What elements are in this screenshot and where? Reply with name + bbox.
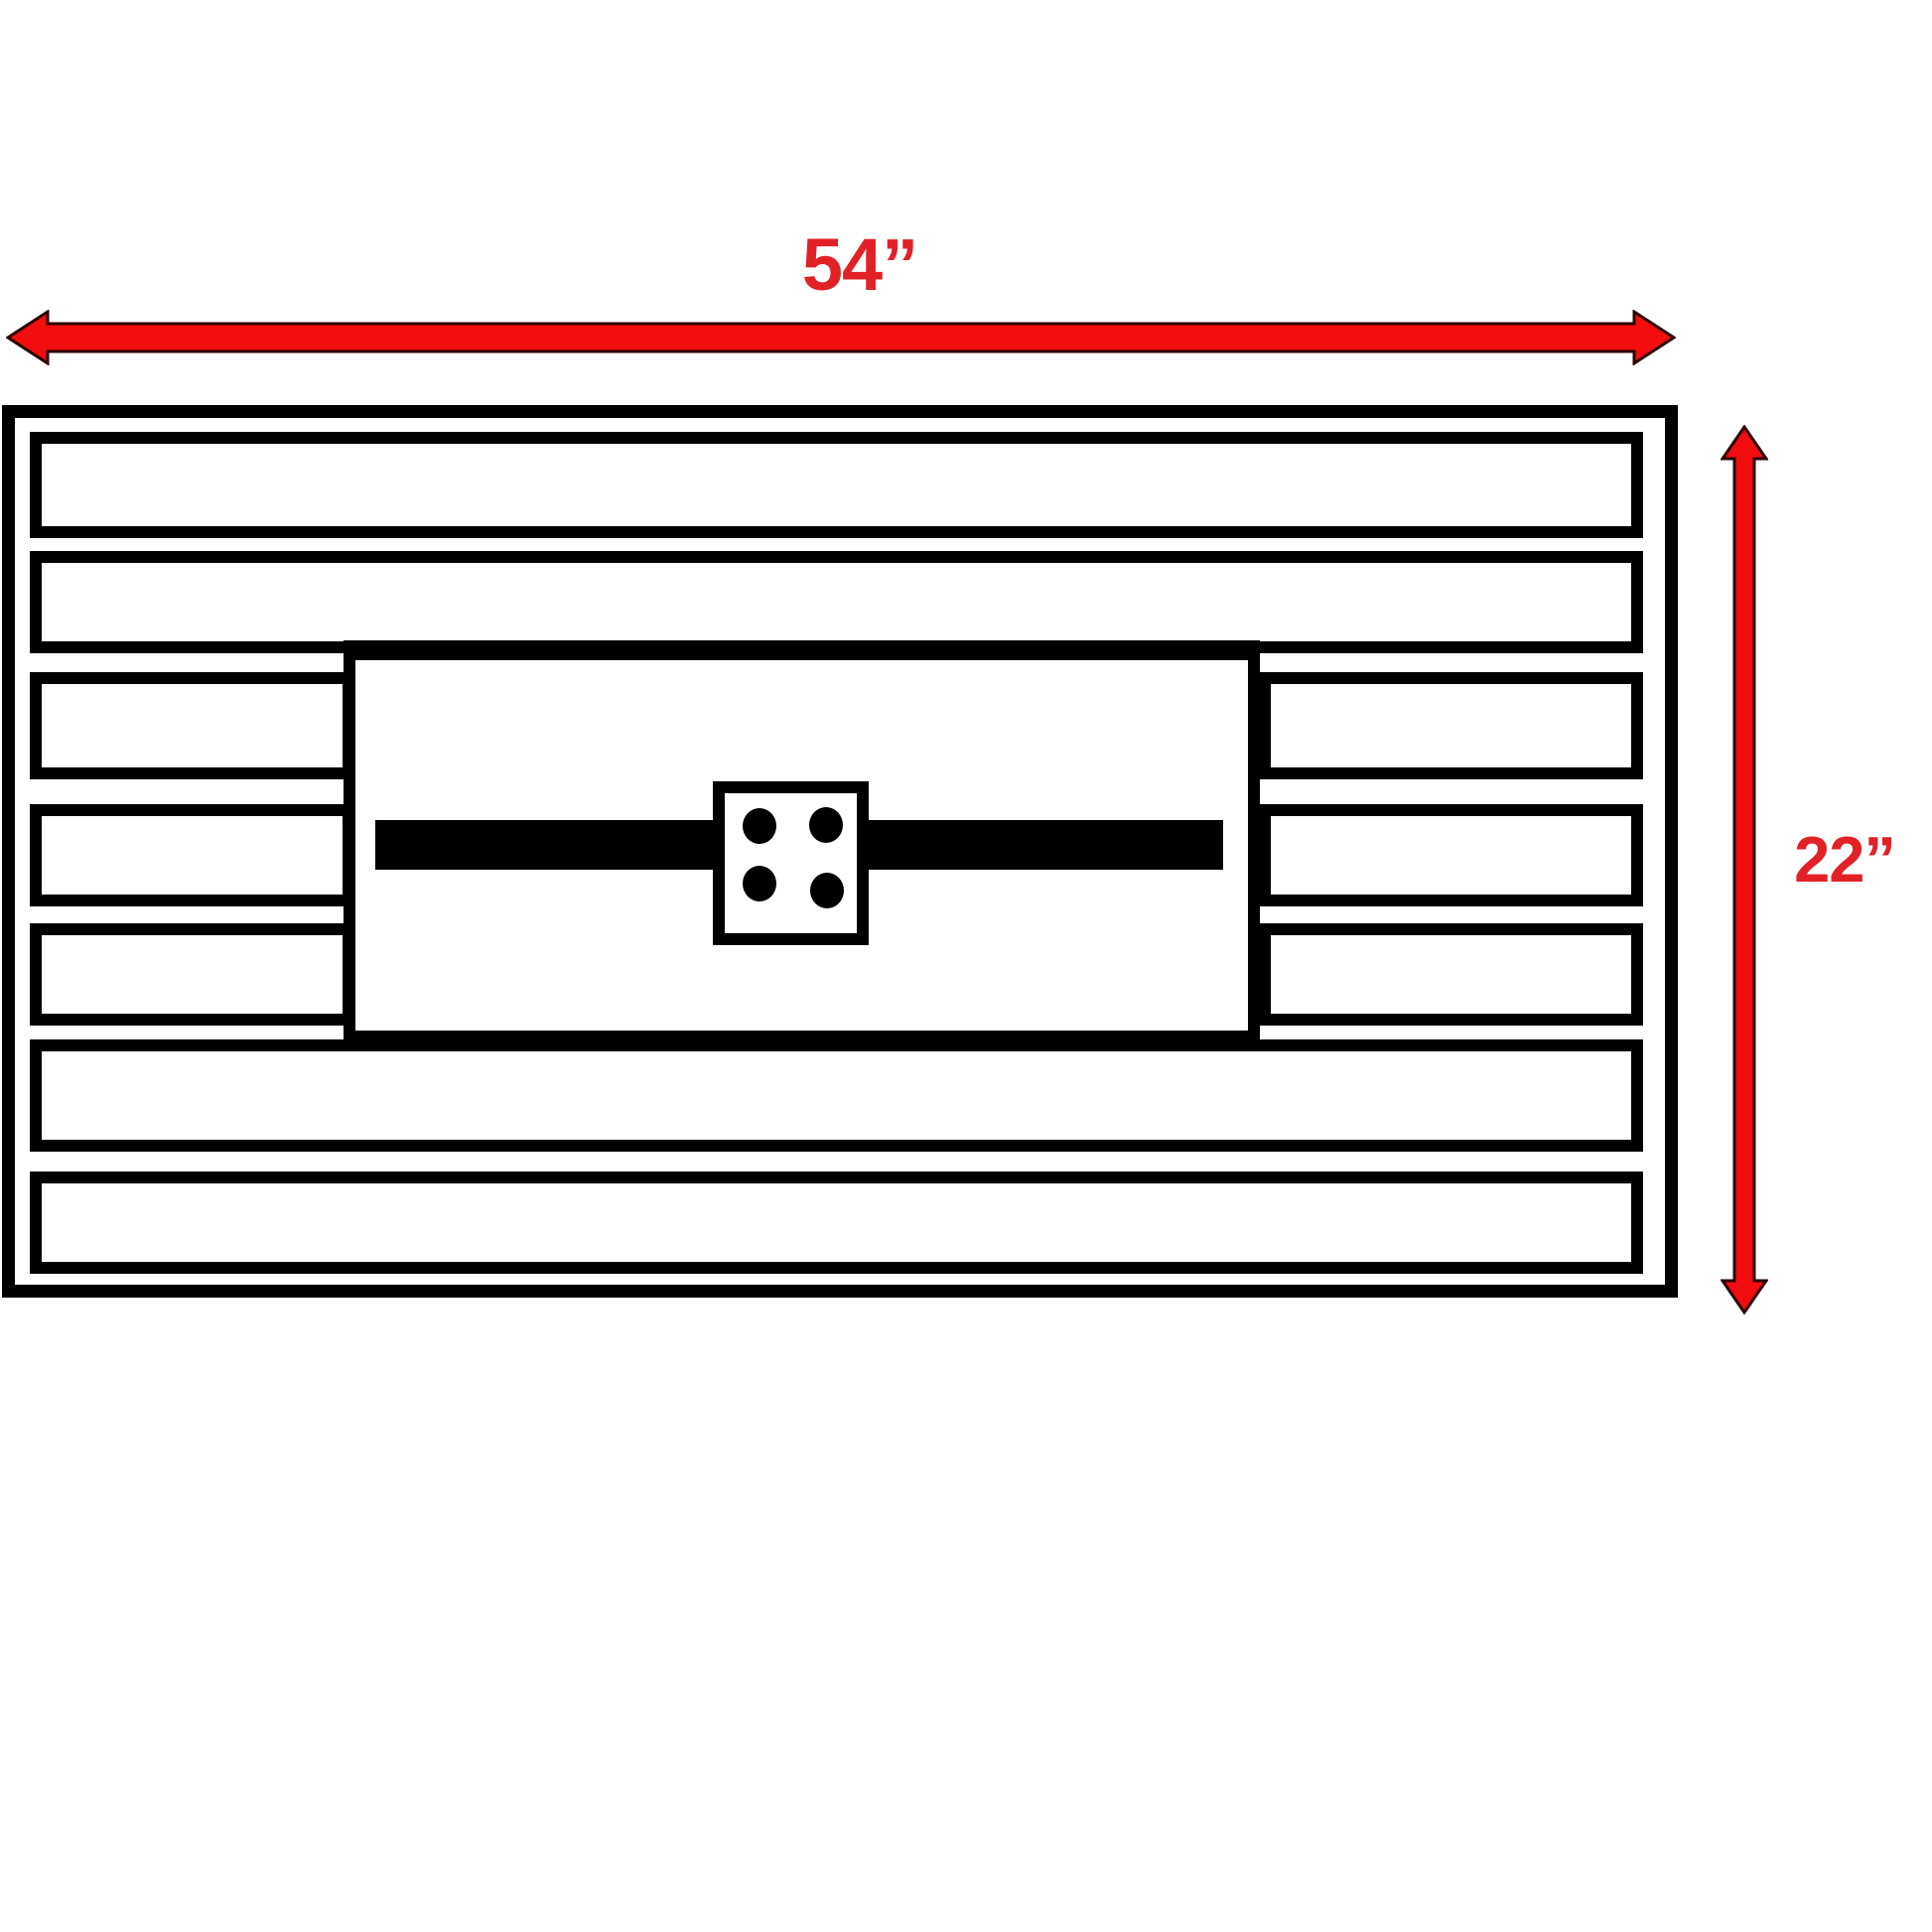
slat-row-3-right <box>1259 672 1643 779</box>
slat-row-6 <box>30 1039 1643 1152</box>
slat-row-7 <box>30 1172 1643 1274</box>
slat-row-5-right <box>1259 923 1643 1026</box>
slat-row-1 <box>30 432 1643 538</box>
bolt-icon <box>809 807 843 843</box>
slat-row-3-left <box>30 672 354 779</box>
slat-row-2 <box>30 551 1643 653</box>
horizontal-dimension-arrow-icon <box>6 310 1676 365</box>
bolt-icon <box>743 866 776 901</box>
diagram-canvas: 54” 22” <box>0 0 1932 1932</box>
vertical-dimension-arrow-icon <box>1721 425 1768 1314</box>
slat-row-4-left <box>30 804 354 906</box>
width-dimension-label: 54” <box>802 228 917 302</box>
horizontal-arrow-shape <box>8 312 1674 363</box>
bolt-icon <box>810 873 844 908</box>
slat-row-4-right <box>1259 804 1643 906</box>
slat-row-5-left <box>30 923 354 1026</box>
mount-plate <box>713 781 869 945</box>
height-dimension-label: 22” <box>1794 827 1895 892</box>
vertical-arrow-shape <box>1723 427 1766 1312</box>
bolt-icon <box>743 808 776 844</box>
